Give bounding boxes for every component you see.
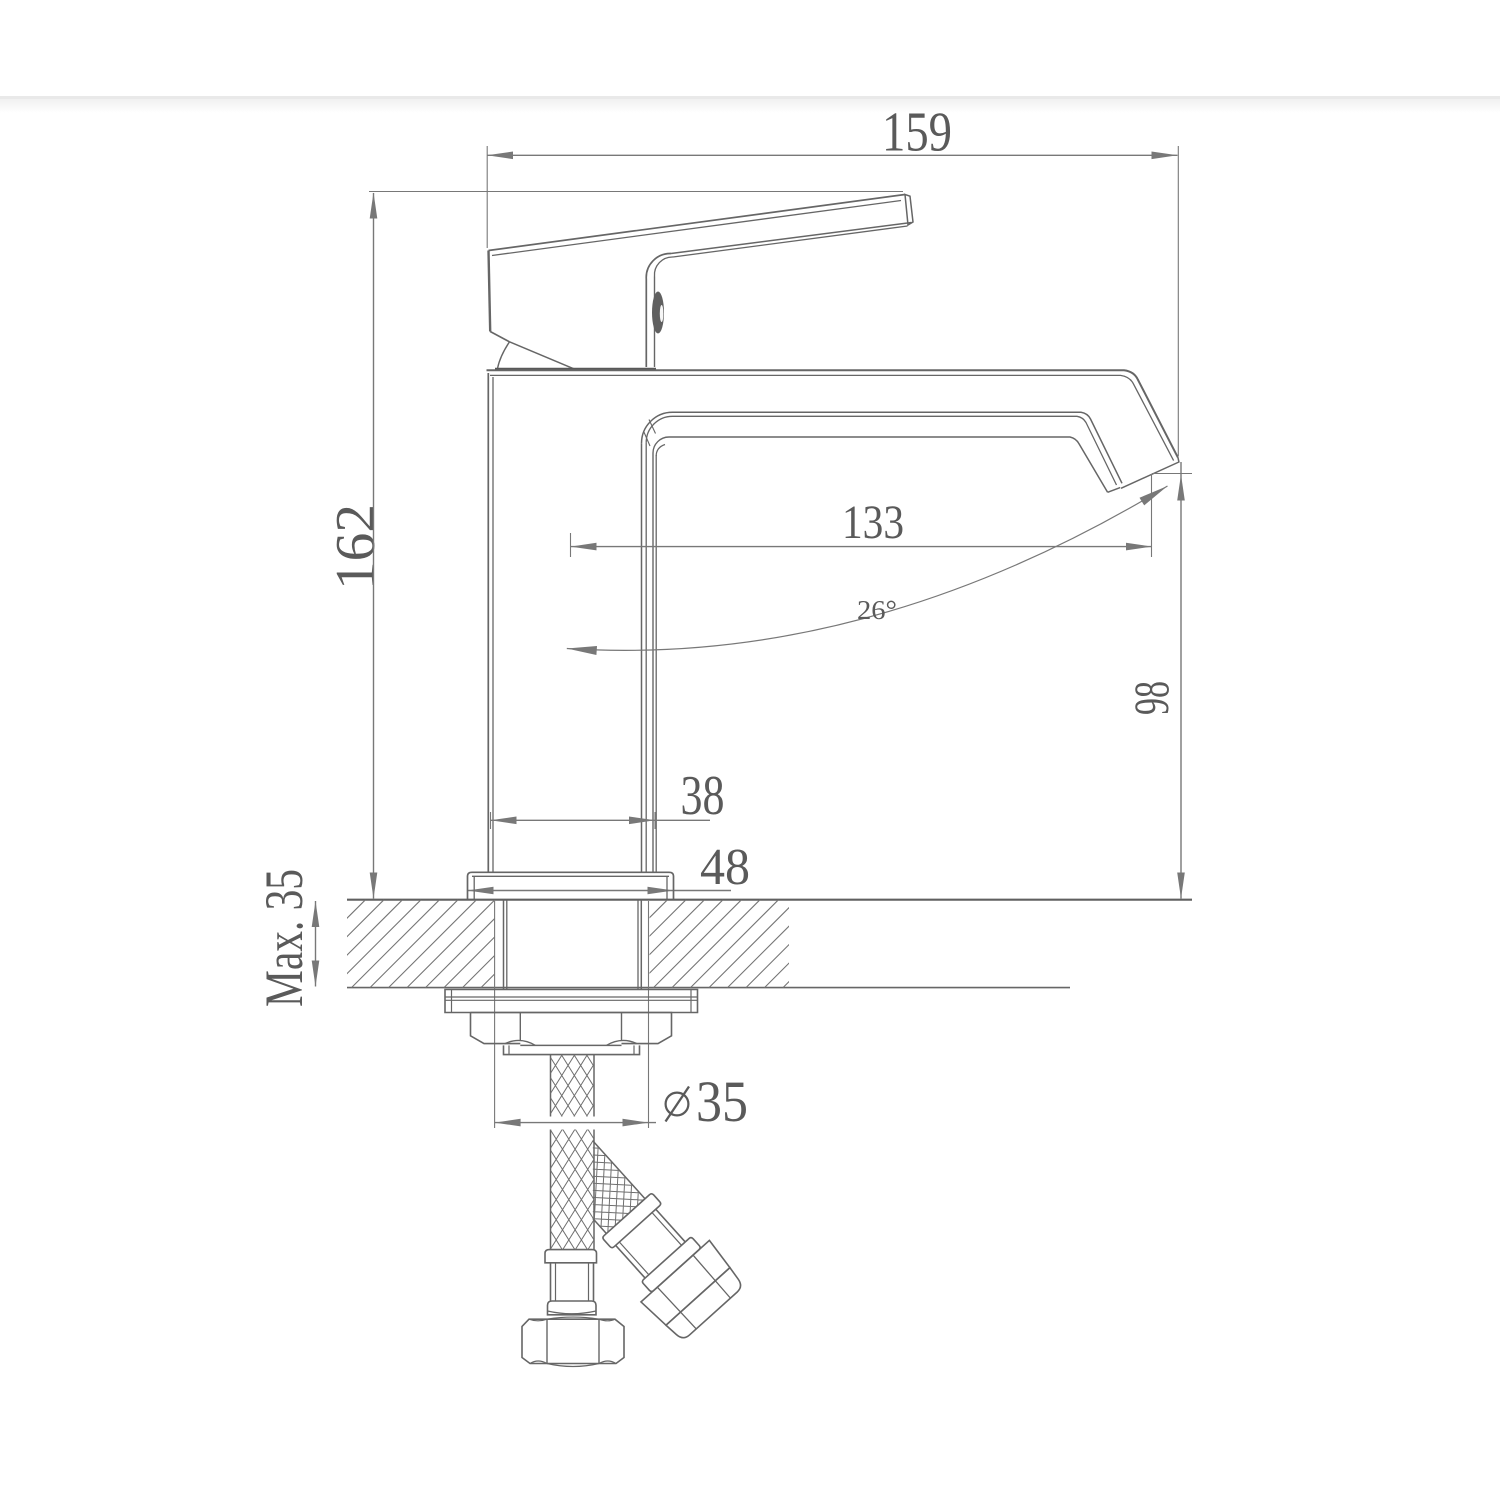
svg-text:38: 38 bbox=[681, 765, 725, 827]
svg-text:133: 133 bbox=[842, 496, 904, 549]
svg-text:26°: 26° bbox=[857, 595, 897, 625]
svg-text:162: 162 bbox=[325, 504, 387, 590]
svg-text:48: 48 bbox=[700, 839, 750, 896]
svg-text:159: 159 bbox=[882, 102, 952, 164]
svg-text:98: 98 bbox=[1123, 681, 1179, 715]
svg-text:35: 35 bbox=[696, 1069, 748, 1134]
svg-text:Max. 35: Max. 35 bbox=[254, 869, 314, 1007]
